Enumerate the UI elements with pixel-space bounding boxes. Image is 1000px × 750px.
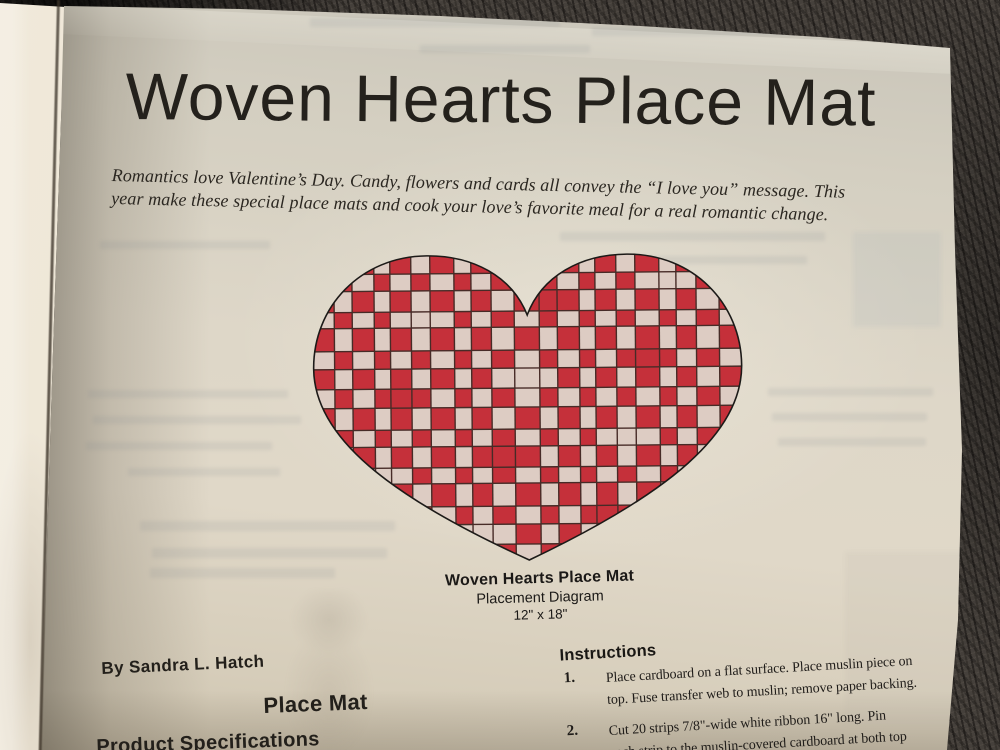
showthrough-line: [88, 390, 288, 398]
section-heading-place-mat: Place Mat: [263, 689, 368, 719]
showthrough-line: [128, 468, 280, 476]
page-title: Woven Hearts Place Mat: [125, 58, 876, 141]
intro-paragraph: Romantics love Valentine’s Day. Candy, f…: [111, 164, 846, 227]
showthrough-line: [560, 232, 825, 241]
showthrough-line: [420, 45, 590, 53]
section-heading-product-specifications: Product Specifications: [96, 728, 320, 750]
showthrough-line: [93, 416, 301, 424]
showthrough-line: [772, 413, 927, 421]
heart-placement-diagram: [309, 249, 748, 565]
instructions-section: Instructions 1. Place cardboard on a fla…: [559, 626, 943, 750]
diagram-caption: Woven Hearts Place Mat Placement Diagram…: [392, 566, 687, 626]
showthrough-image-block: [853, 232, 941, 327]
woven-heart-illustration: [309, 249, 748, 565]
article-page: Woven Hearts Place Mat Romantics love Va…: [0, 0, 1000, 750]
magazine-page-photo: Woven Hearts Place Mat Romantics love Va…: [0, 0, 1000, 750]
showthrough-line: [768, 388, 933, 396]
showthrough-line: [86, 442, 272, 450]
step-number: 2.: [566, 723, 578, 741]
showthrough-doll-figure: [268, 590, 390, 750]
showthrough-line: [778, 438, 926, 446]
showthrough-line: [100, 241, 270, 249]
step-number: 1.: [563, 670, 575, 688]
byline: By Sandra L. Hatch: [101, 652, 265, 679]
showthrough-line: [150, 568, 335, 578]
